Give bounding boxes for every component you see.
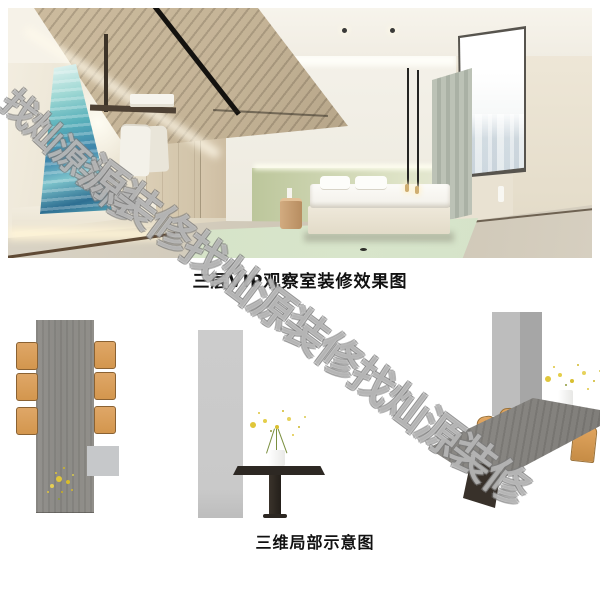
side-chair <box>202 464 232 522</box>
side-chair <box>310 463 340 521</box>
plan-chair <box>94 372 116 400</box>
table-foot <box>263 514 287 518</box>
rug-decor-dot <box>360 248 367 251</box>
vase-flowers <box>250 422 256 428</box>
pendant-wire <box>407 68 409 186</box>
plan-chair <box>94 406 116 434</box>
bedroom-render-image <box>8 8 592 258</box>
bedside-stool <box>280 198 302 229</box>
pillow <box>355 176 387 190</box>
candle <box>287 188 292 198</box>
page: 三层VIP观察室装修效果图 <box>0 0 600 607</box>
bedside-lamp <box>498 186 504 202</box>
schematic-caption: 三维局部示意图 <box>15 529 600 553</box>
persp-chair <box>418 438 446 491</box>
persp-chair <box>526 449 556 507</box>
plan-chair <box>16 342 38 370</box>
column-left-face <box>492 312 520 416</box>
shelf-rod <box>104 34 108 112</box>
pillow <box>320 176 350 190</box>
folded-towels <box>130 94 174 107</box>
pendant-wire <box>417 70 419 188</box>
plan-flowers <box>56 476 62 482</box>
plan-view-figure <box>8 318 120 518</box>
spotlight <box>342 28 347 33</box>
spotlight <box>390 28 395 33</box>
plan-cabinet-box <box>87 446 119 476</box>
vase-flowers <box>545 376 551 382</box>
bed-base <box>308 206 450 234</box>
plan-chair <box>94 341 116 369</box>
persp-chair <box>489 457 521 518</box>
persp-chair <box>560 436 588 489</box>
flower-stem <box>276 426 277 452</box>
headboard-glow <box>254 164 454 170</box>
render-caption: 三层VIP观察室装修效果图 <box>0 267 600 292</box>
elevation-figure <box>192 326 357 526</box>
pendant-bulb <box>415 186 419 194</box>
hanging-shirt <box>119 123 151 176</box>
plan-chair <box>16 407 38 435</box>
perspective-figure <box>413 310 600 522</box>
table-pedestal <box>269 475 281 516</box>
vase <box>268 450 285 466</box>
plan-table <box>36 320 94 513</box>
pendant-bulb <box>405 184 409 192</box>
plan-chair <box>16 373 38 401</box>
persp-chair <box>447 428 473 477</box>
